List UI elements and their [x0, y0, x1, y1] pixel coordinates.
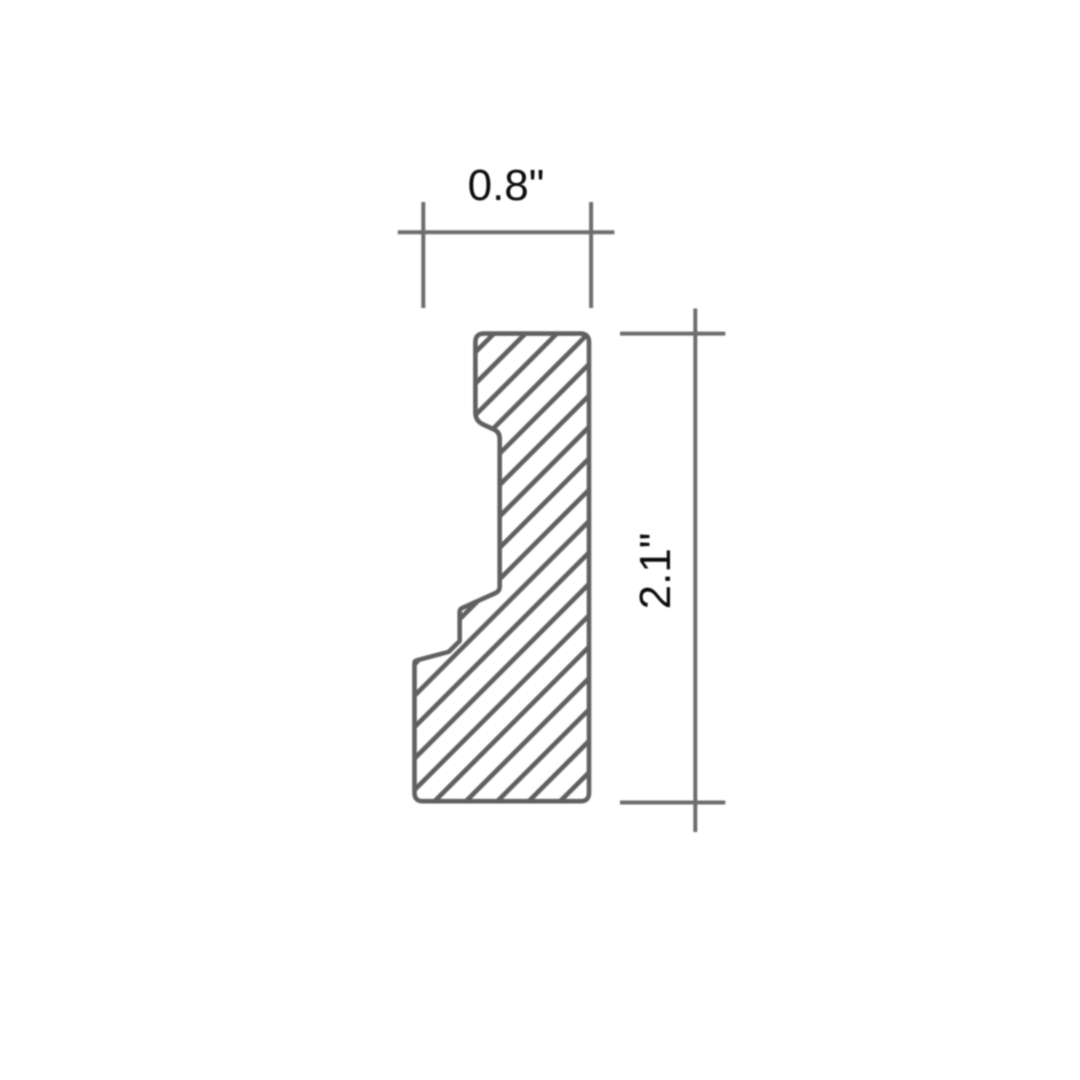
svg-text:0.8": 0.8" [468, 161, 545, 210]
svg-text:2.1": 2.1" [631, 533, 680, 610]
